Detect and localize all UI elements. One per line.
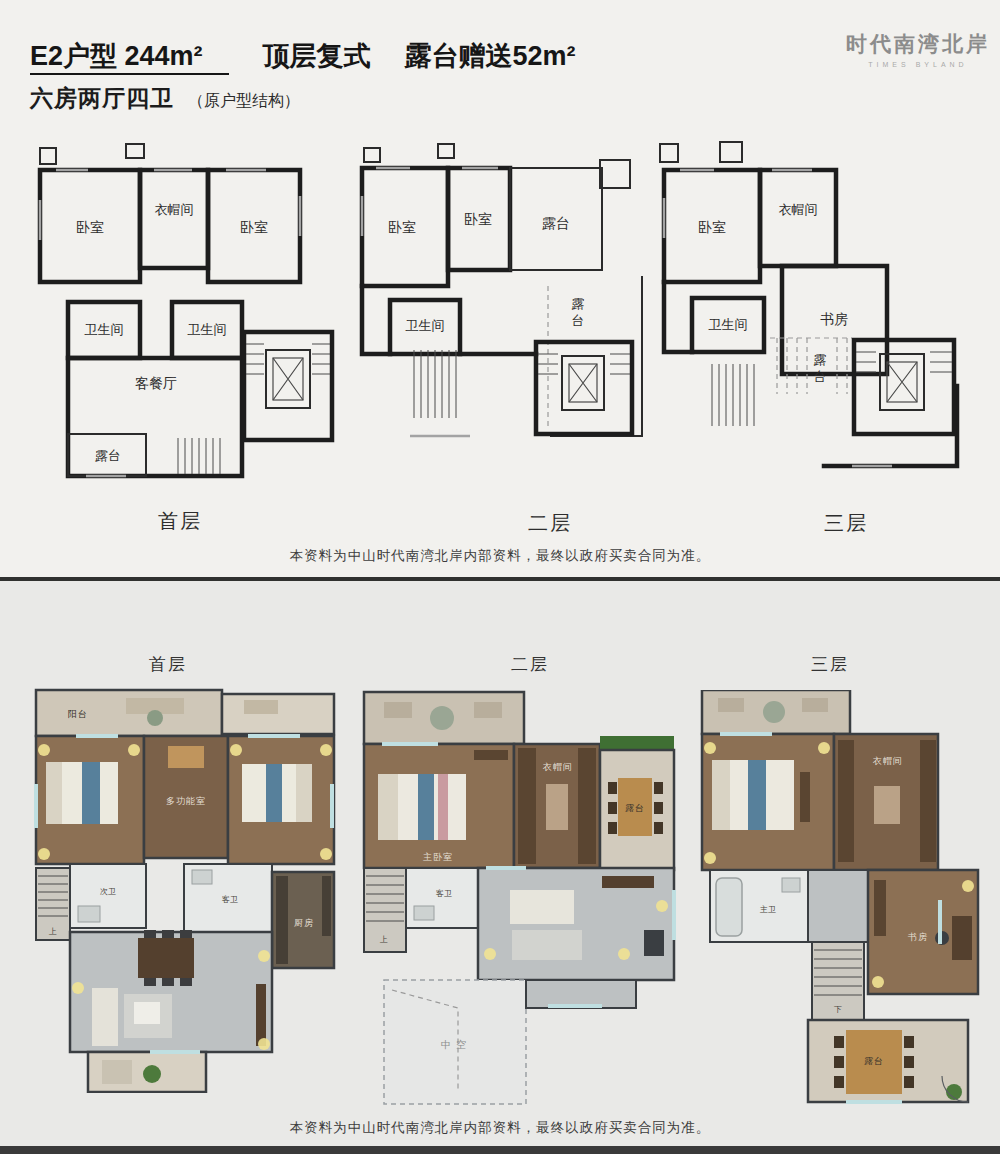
floorplan-schematic-first-floor: 卧室 衣帽间 卧室 卫生间 卫生间 客餐厅 露台 — [26, 136, 341, 486]
stairs-direction-label: 下 — [834, 1005, 842, 1014]
column-marker — [660, 144, 678, 162]
column-marker — [40, 148, 56, 164]
column-marker — [364, 148, 380, 162]
stair-hatch — [414, 350, 456, 418]
tv-console — [256, 984, 266, 1046]
room-label: 露台 — [864, 1056, 884, 1066]
stair-hatch — [178, 438, 220, 474]
column-marker — [600, 160, 630, 188]
floorplan-rendered-third-floor: 衣帽间 主卫 下 书房 露台 — [696, 690, 996, 1110]
title-line1: E2户型 244m²顶层复式露台赠送52m² — [30, 38, 576, 74]
elevator-stair-core — [536, 342, 632, 434]
brand-logo-cn: 时代南湾北岸 — [838, 30, 998, 58]
room-label: 卫生间 — [85, 322, 124, 337]
disclaimer-text: 本资料为中山时代南湾北岸内部资料，最终以政府买卖合同为准。 — [0, 547, 1000, 565]
brand-logo: 时代南湾北岸 TIMES BYLAND — [838, 30, 998, 68]
room-label: 露台 — [625, 803, 645, 813]
schematic-section: E2户型 244m²顶层复式露台赠送52m² 六房两厅四卫（原户型结构） 时代南… — [0, 0, 1000, 577]
unit-area-label: E2户型 244m² — [30, 41, 229, 75]
floor-label-second: 二层 — [475, 653, 585, 676]
column-marker — [438, 144, 454, 158]
rendered-section: 时代南湾北岸 TIMES BYLAND 首层 二层 三层 阳台 多功能室 次卫 … — [0, 581, 1000, 1146]
room-label: 阳台 — [68, 709, 88, 719]
sofa — [510, 890, 574, 924]
room-label: 卫生间 — [188, 322, 227, 337]
room-label: 露台 — [542, 215, 570, 231]
room-label: 客卫 — [222, 895, 238, 904]
floorplan-schematic-second-floor: 卧室 卧室 露台 卫生间 露台 — [350, 136, 650, 496]
floorplan-schematic-third-floor: 卧室 衣帽间 卫生间 书房 露台 — [652, 136, 982, 501]
room-label: 卧室 — [388, 219, 416, 235]
column-marker — [126, 144, 144, 158]
floor-label-first: 首层 — [113, 653, 223, 676]
room-label: 露台 — [95, 448, 121, 463]
floor-label-third: 三层 — [791, 510, 901, 537]
room-label: 卧室 — [698, 219, 726, 235]
room-label: 次卫 — [100, 887, 116, 896]
floorplan-rendered-first-floor: 阳台 多功能室 次卫 客卫 厨房 上 — [30, 688, 340, 1093]
original-structure-note: （原户型结构） — [188, 92, 300, 109]
room-label-vertical: 露台 — [572, 296, 585, 328]
room-label: 主卫 — [759, 905, 776, 914]
room-label: 卫生间 — [406, 318, 445, 333]
room-label: 衣帽间 — [779, 202, 818, 217]
room-label: 客卫 — [436, 889, 452, 898]
room-label: 书房 — [820, 311, 848, 327]
desk — [952, 916, 972, 960]
dining-table — [138, 938, 194, 978]
planter — [600, 736, 674, 750]
elevator-stair-core — [244, 332, 332, 440]
brand-logo-en: TIMES BYLAND — [838, 61, 998, 68]
room-label: 厨房 — [294, 918, 314, 928]
room-label: 卧室 — [76, 219, 104, 235]
room-label: 卧室 — [240, 219, 268, 235]
plant — [143, 1065, 161, 1083]
room-label: 主卧室 — [423, 852, 453, 862]
duplex-label: 顶层复式 — [263, 41, 371, 71]
floorplan-rendered-second-floor: 主卧室 衣帽间 露台 客卫 上 中空 — [362, 690, 677, 1110]
room-label: 衣帽间 — [155, 202, 194, 217]
title-line2: 六房两厅四卫（原户型结构） — [30, 83, 576, 114]
rooms-count-label: 六房两厅四卫 — [30, 85, 174, 111]
bathtub — [716, 878, 742, 936]
stair-hatch — [712, 364, 754, 426]
terrace-bonus-label: 露台赠送52m² — [405, 41, 576, 71]
room-label: 衣帽间 — [872, 756, 903, 766]
floor-label-first: 首层 — [125, 508, 235, 535]
stairs-direction-label: 上 — [48, 927, 57, 936]
page-title: E2户型 244m²顶层复式露台赠送52m² 六房两厅四卫（原户型结构） — [30, 38, 576, 114]
room-label: 卫生间 — [709, 317, 748, 332]
floor-label-third: 三层 — [775, 653, 885, 676]
bottom-edge-strip — [0, 1146, 1000, 1154]
room-label: 衣帽间 — [542, 762, 573, 772]
room-label: 卧室 — [464, 211, 492, 227]
room-label: 中空 — [441, 1039, 471, 1050]
column-marker — [720, 142, 742, 162]
room-label: 客餐厅 — [135, 375, 177, 391]
floor-label-second: 二层 — [495, 510, 605, 537]
sofa — [92, 988, 118, 1046]
room-label: 书房 — [907, 932, 928, 942]
elevator-stair-core — [854, 340, 954, 434]
stairs-direction-label: 上 — [379, 935, 388, 944]
room-label: 多功能室 — [166, 796, 206, 806]
room-label-vertical: 露台 — [814, 352, 827, 384]
disclaimer-text: 本资料为中山时代南湾北岸内部资料，最终以政府买卖合同为准。 — [0, 1119, 1000, 1137]
tv-console — [602, 876, 654, 888]
